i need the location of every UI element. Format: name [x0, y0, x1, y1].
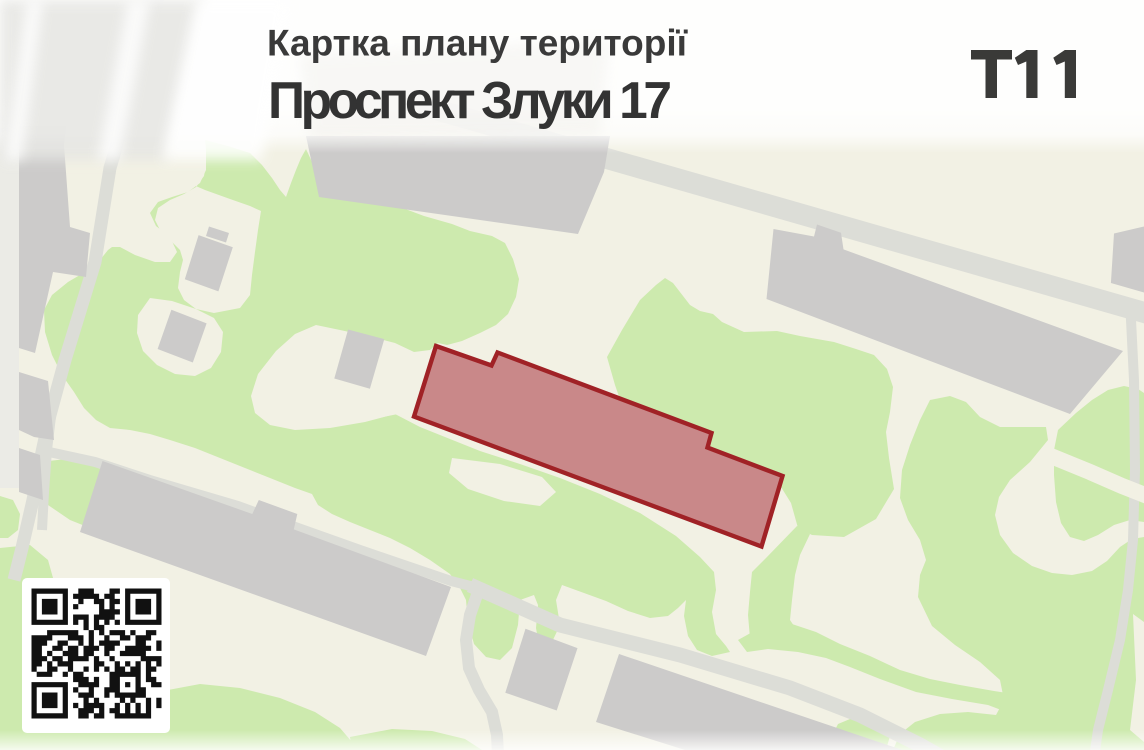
svg-text:Картка плану території: Картка плану території — [267, 23, 689, 64]
svg-text:Проспект Злуки 17: Проспект Злуки 17 — [268, 71, 672, 129]
